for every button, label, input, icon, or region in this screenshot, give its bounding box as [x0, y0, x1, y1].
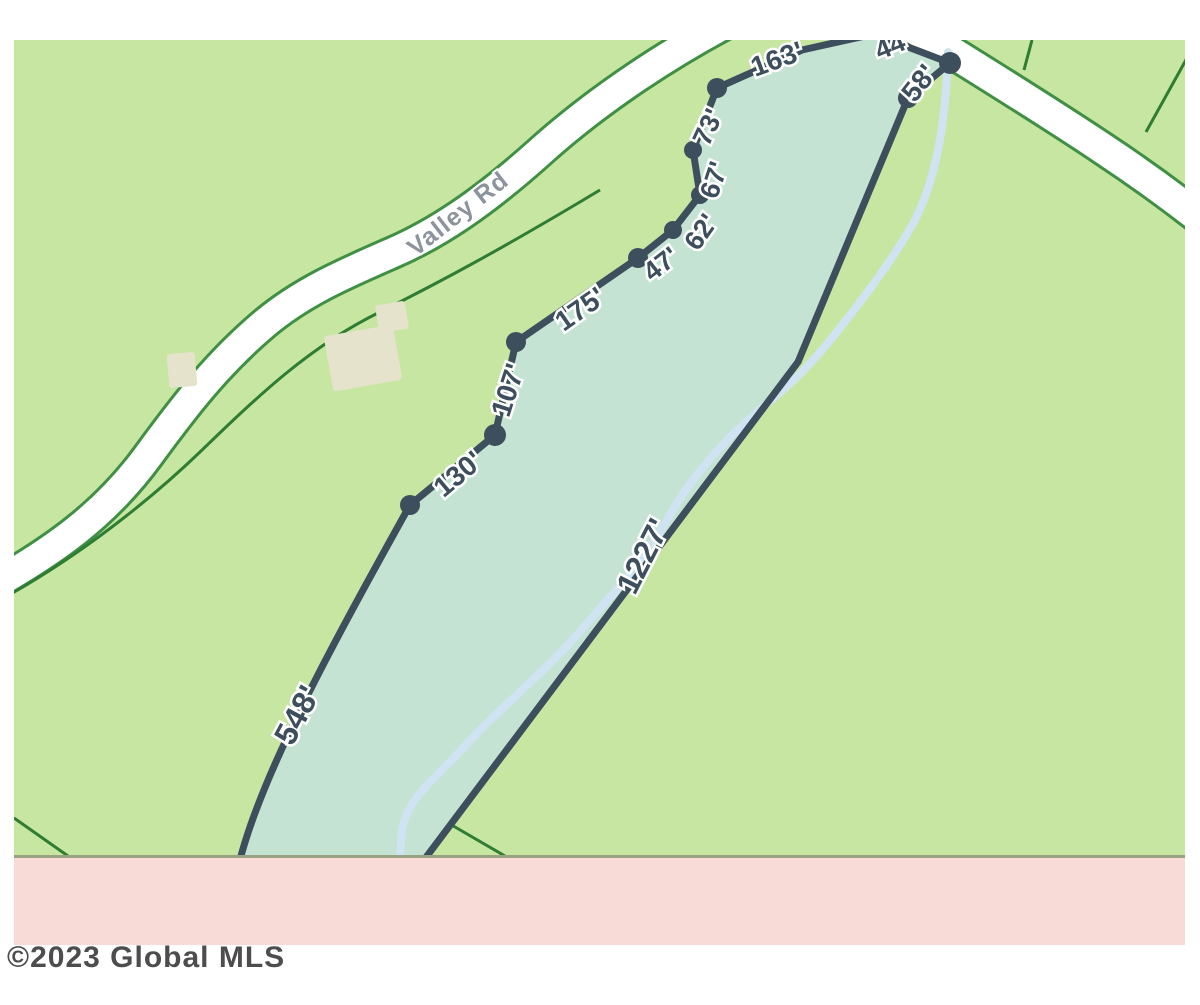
building-footprint-small [167, 352, 198, 388]
building-footprint-large [324, 324, 403, 391]
listing-map-page: Valley Rd 548' 130' 107' 175' 47' 62' 67… [0, 0, 1200, 1005]
copyright-watermark: ©2023 Global MLS [7, 941, 285, 975]
parcel-map-canvas: Valley Rd 548' 130' 107' 175' 47' 62' 67… [14, 40, 1185, 855]
vertex-dot [707, 78, 727, 98]
vertex-dot [484, 424, 506, 446]
adjacent-zone-band [14, 855, 1185, 945]
vertex-dot [939, 52, 961, 74]
parcel-map-image[interactable]: Valley Rd 548' 130' 107' 175' 47' 62' 67… [14, 40, 1185, 855]
vertex-dot [400, 495, 420, 515]
building-footprint-upper [375, 301, 409, 334]
vertex-dot [506, 332, 526, 352]
